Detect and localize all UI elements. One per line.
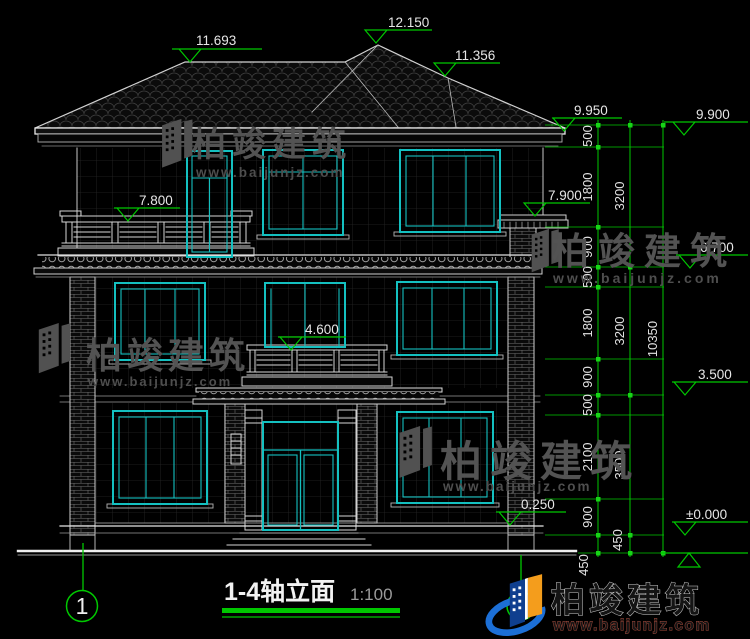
watermark-top-web: www.baijunjz.com [195, 165, 345, 180]
watermark-right-brand: 柏竣建筑 [552, 230, 736, 272]
footer-logo-brand: 柏竣建筑 [551, 581, 703, 620]
marker-ground: ±0.000 [672, 507, 748, 535]
drawing-scale: 1:100 [350, 585, 393, 604]
dim-floor-0: 3200 [612, 182, 627, 211]
watermark-left-brand: 柏竣建筑 [86, 335, 250, 376]
footer-logo: 柏竣建筑 www.baijunjz.com [485, 574, 711, 639]
elevation-drawing-canvas: 500 1800 900 500 1800 900 500 2100 900 4… [0, 0, 750, 639]
marker-eave-left-value: 9.950 [574, 103, 608, 118]
dimension-labels: 500 1800 900 500 1800 900 500 2100 900 4… [576, 125, 660, 576]
marker-canopy-right-value: 7.900 [548, 188, 582, 203]
cad-elevation-svg: 500 1800 900 500 1800 900 500 2100 900 4… [0, 0, 750, 639]
porch-canopy [193, 388, 445, 404]
dim-total: 10350 [645, 321, 660, 357]
dim-fine-6: 500 [580, 394, 595, 416]
dim-fine-8: 900 [580, 506, 595, 528]
marker-mid-balcony-value: 4.600 [305, 322, 339, 337]
dim-floor-1: 3200 [612, 317, 627, 346]
footer-logo-mark [485, 574, 547, 639]
marker-floor2: 3.500 [672, 367, 748, 395]
marker-grid-top-value: 9.900 [696, 107, 730, 122]
dim-fine-4: 1800 [580, 309, 595, 338]
dim-fine-1: 1800 [580, 173, 595, 202]
marker-ground-value: ±0.000 [686, 507, 727, 522]
watermark-bottom-web: www.baijunjz.com [442, 479, 592, 494]
marker-below-grade [660, 553, 748, 567]
dim-fine-5: 900 [580, 366, 595, 388]
watermark-right: 柏竣建筑 www.baijunjz.com [510, 229, 736, 286]
watermark-bottom-brand: 柏竣建筑 [440, 438, 640, 485]
footer-logo-web: www.baijunjz.com [552, 617, 711, 634]
drawing-title: 1-4轴立面 [224, 577, 335, 606]
marker-grid-top: 9.900 [664, 107, 748, 135]
marker-ridge-main: 12.150 [365, 15, 432, 43]
marker-ridge-main-value: 12.150 [388, 15, 429, 30]
marker-balcony-top-value: 7.800 [139, 193, 173, 208]
level3-eave-band [34, 255, 542, 277]
title-block: 1-4轴立面 1:100 [222, 577, 400, 617]
marker-ridge-left-value: 11.693 [196, 33, 236, 48]
axis-1-label: 1 [76, 593, 89, 619]
marker-ridge-right-value: 11.356 [455, 48, 495, 63]
right-canopy [498, 215, 568, 228]
dim-floor-3: 450 [610, 529, 625, 551]
dim-fine-9: 450 [576, 554, 591, 576]
marker-plinth-value: 0.250 [521, 497, 555, 512]
marker-ridge-right: 11.356 [434, 48, 500, 76]
watermark-top-brand: 柏竣建筑 [192, 125, 352, 164]
marker-ridge-left: 11.693 [172, 33, 262, 62]
marker-floor2-value: 3.500 [698, 367, 732, 382]
dim-fine-0: 500 [580, 125, 595, 147]
title-underline-thick [222, 608, 400, 613]
watermark-right-web: www.baijunjz.com [552, 270, 722, 286]
watermark-left-web: www.baijunjz.com [87, 374, 232, 389]
